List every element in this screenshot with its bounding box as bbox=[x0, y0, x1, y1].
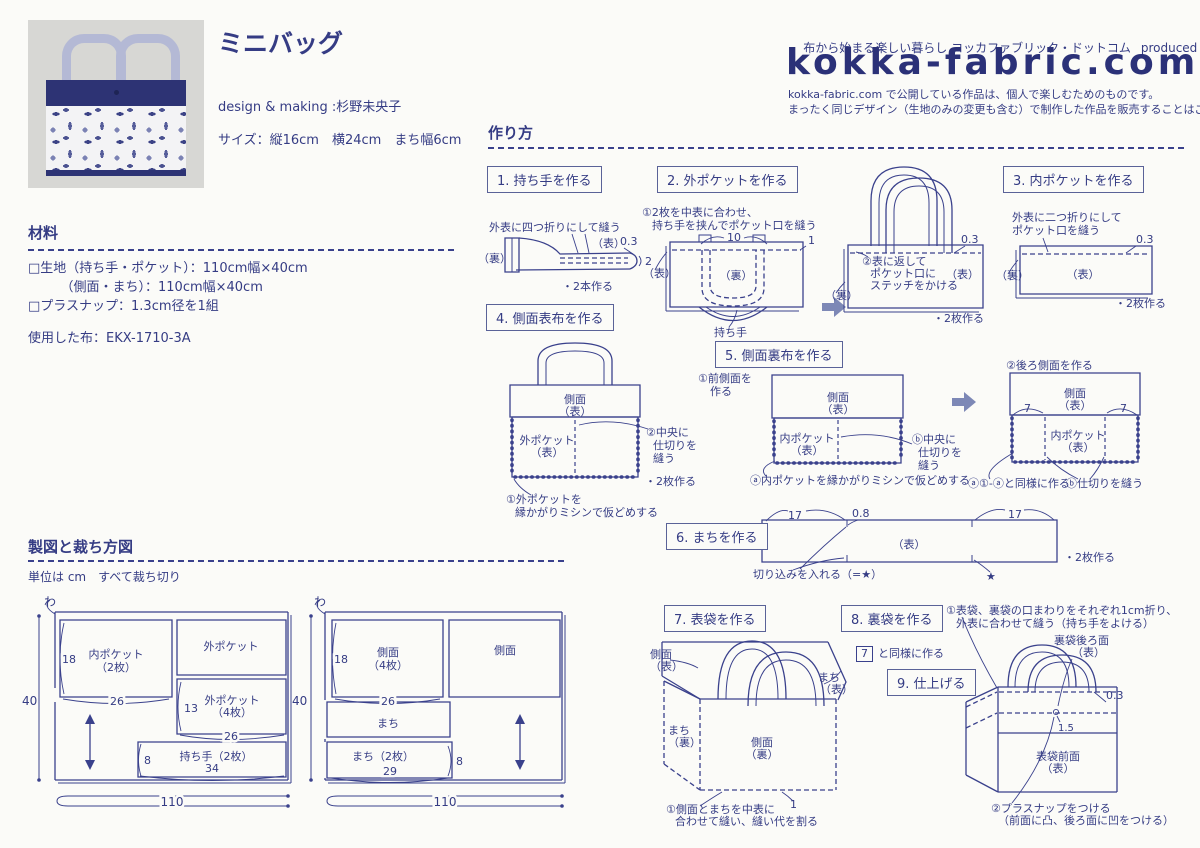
leader-line bbox=[1094, 692, 1106, 702]
dimension-dot bbox=[309, 614, 313, 618]
cutR-width: 110 bbox=[434, 795, 457, 809]
dimension-arc bbox=[178, 682, 181, 731]
s4-make-count: ・2枚作る bbox=[645, 474, 696, 488]
s5-noteA2: ⓐ①-ⓐと同様に作る bbox=[968, 476, 1070, 490]
material-item: □生地（持ち手・ポケット）：110cm幅×40cm bbox=[28, 260, 458, 279]
cutL-p4-label: 持ち手（2枚） bbox=[180, 749, 253, 763]
handle-loop bbox=[706, 307, 760, 317]
bag-photo bbox=[28, 20, 204, 188]
s4-note1b: 縁かがりミシンで仮どめする bbox=[515, 505, 658, 519]
cutting-note: 単位は cm すべて裁ち切り bbox=[28, 568, 181, 585]
s5-noteBb: 仕切りを bbox=[918, 446, 962, 459]
step-title-7: 7. 表袋を作る bbox=[664, 605, 766, 632]
cutR-p1-count: （4枚） bbox=[368, 658, 408, 672]
dimension-dot bbox=[560, 804, 564, 808]
bag-side-outline bbox=[966, 687, 998, 792]
s5-note1b: 作る bbox=[710, 385, 732, 398]
step-ref-box: 7 bbox=[856, 646, 873, 662]
step9-diagram: ①表袋、裏袋の口まわりをそれぞれ1cm折り、 外表に合わせて縫う（持ち手をよける… bbox=[946, 603, 1177, 827]
s6-dim-17b: 17 bbox=[1008, 508, 1022, 521]
s3-make-count: ・2枚作る bbox=[1115, 296, 1166, 310]
s4-note2c: 縫う bbox=[653, 451, 675, 465]
s6-star: ★ bbox=[986, 570, 996, 583]
step-title-3: 3. 内ポケットを作る bbox=[1003, 166, 1144, 193]
s5-noteBa: ⓑ中央に bbox=[912, 433, 956, 446]
cutting-heading: 製図と裁ち方図 bbox=[28, 536, 133, 557]
cutR-p4-label: まち（2枚） bbox=[352, 749, 414, 763]
s5-noteB2: ⓑ仕切りを縫う bbox=[1066, 476, 1143, 490]
cutR-p1-width: 26 bbox=[381, 695, 395, 708]
leader-line bbox=[1047, 457, 1078, 479]
s5-pocketR-face: （表） bbox=[1062, 440, 1095, 454]
s5-side-face: （表） bbox=[822, 402, 855, 416]
s7-sideU-face: （裏） bbox=[746, 747, 779, 761]
dimension-dot bbox=[286, 794, 290, 798]
s2-dim-10: 10 bbox=[727, 231, 741, 244]
s5-dim-7a: 7 bbox=[1024, 402, 1031, 415]
cutR-p4-height: 8 bbox=[456, 755, 463, 768]
leader-line bbox=[954, 246, 965, 253]
strap-bottom-edge bbox=[516, 269, 630, 270]
s6-dim-08: 0.8 bbox=[852, 507, 870, 520]
s2-omote: （表） bbox=[643, 266, 676, 280]
cutting-right-diagram: わ 40 110 側面 （4枚） 18 26 側面 まち まち（2枚） 29 8 bbox=[292, 595, 565, 809]
s6-cut-note: 切り込みを入れる（=★） bbox=[753, 568, 882, 581]
s3-note1a: 外表に二つ折りにして bbox=[1012, 210, 1122, 224]
s5-note2: ②後ろ側面を作る bbox=[1006, 358, 1093, 372]
handle-outline bbox=[538, 343, 612, 385]
grain-arrowhead bbox=[85, 760, 95, 770]
s5-pocket-label: 内ポケット bbox=[780, 431, 835, 445]
cutR-fold: わ bbox=[314, 595, 326, 609]
leader-line bbox=[800, 527, 846, 569]
s6-make-count: ・2枚作る bbox=[1064, 550, 1115, 564]
s3-ura: （裏） bbox=[996, 268, 1029, 282]
cutR-p1-label: 側面 bbox=[377, 646, 399, 659]
leader-line bbox=[989, 453, 1013, 479]
s5-pocketR-label: 内ポケット bbox=[1051, 428, 1106, 442]
cutL-height: 40 bbox=[22, 694, 37, 708]
s7-note1b: 合わせて縫い、縫い代を割る bbox=[675, 814, 818, 828]
s4-pocket-face: （表） bbox=[531, 445, 564, 459]
fabric-used: 使用した布：EKX-1710-3A bbox=[28, 330, 458, 349]
materials-heading: 材料 bbox=[28, 222, 458, 243]
s4-side-face: （表） bbox=[559, 404, 592, 418]
cutR-p2-label: 側面 bbox=[494, 644, 516, 657]
dashed-rule bbox=[28, 560, 566, 562]
step8-note-text: と同様に作る bbox=[878, 647, 944, 660]
s5-pocket-face: （表） bbox=[791, 443, 824, 457]
cutL-p1-width: 26 bbox=[110, 695, 124, 708]
arrow-right-icon bbox=[952, 392, 976, 412]
step7-diagram: 側面 （表） まち （表） まち （裏） 側面 （裏） 1 ①側面とまちを中表に… bbox=[650, 641, 853, 828]
leader-line bbox=[729, 310, 737, 327]
s2-ura: （裏） bbox=[720, 268, 753, 282]
s4-note2b: 仕切りを bbox=[653, 439, 697, 452]
step-title-8: 8. 裏袋を作る bbox=[841, 605, 943, 632]
cutL-p3-count: （4枚） bbox=[212, 705, 252, 719]
cutR-p3-label: まち bbox=[377, 717, 399, 730]
s2-dim-1: 1 bbox=[808, 234, 815, 247]
s1-dim-03: 0.3 bbox=[620, 235, 638, 248]
s2-note1a: ①2枚を中表に合わせ、 bbox=[642, 205, 758, 219]
piece-outline bbox=[449, 620, 560, 697]
page-title: ミニバッグ bbox=[218, 24, 343, 60]
bag-photo-snap bbox=[114, 90, 119, 95]
leader-line bbox=[1090, 457, 1104, 479]
stitch-line bbox=[966, 692, 997, 728]
s9-note1a: ①表袋、裏袋の口まわりをそれぞれ1cm折り、 bbox=[946, 603, 1177, 617]
s5-dim-7b: 7 bbox=[1120, 402, 1127, 415]
howto-heading: 作り方 bbox=[488, 122, 533, 143]
handle-outline bbox=[886, 178, 952, 253]
dimension-bracket bbox=[639, 256, 641, 266]
cutR-p4-width: 29 bbox=[383, 765, 397, 778]
s7-note1a: ①側面とまちを中表に bbox=[666, 802, 775, 816]
s7-machiO-face: （表） bbox=[820, 682, 853, 696]
s6-dim-17a: 17 bbox=[788, 509, 802, 522]
materials-section: 材料 □生地（持ち手・ポケット）：110cm幅×40cm （側面・まち）：110… bbox=[28, 222, 458, 348]
cutL-fold: わ bbox=[44, 595, 56, 609]
leader-line bbox=[1126, 246, 1136, 253]
dimension-arc bbox=[744, 237, 767, 244]
strap-tip bbox=[630, 253, 637, 269]
step4-diagram: 側面 （表） 外ポケット （表） ②中央に 仕切りを 縫う ・2枚作る ①外ポケ… bbox=[506, 343, 697, 519]
grain-arrowhead bbox=[515, 714, 525, 724]
s9-dim-03: 0.3 bbox=[1106, 689, 1124, 702]
leader-line bbox=[848, 520, 858, 525]
s1-make-count: ・2本作る bbox=[562, 279, 613, 293]
dimension-arc bbox=[701, 237, 724, 244]
s4-note2a: ②中央に bbox=[646, 426, 689, 439]
s1-caption: 外表に四つ折りにして縫う bbox=[489, 220, 621, 234]
step5-diagram: ①前側面を 作る 側面 （表） 内ポケット （表） ⓑ中央に 仕切りを 縫う ⓐ… bbox=[698, 358, 1143, 490]
s7-sideO-face: （表） bbox=[650, 659, 683, 673]
step1-diagram: 外表に四つ折りにして縫う （裏） （表） 0.3 2 ・2本作る bbox=[478, 220, 652, 293]
s2-omote2: （表） bbox=[946, 267, 979, 281]
s2-note1b: 持ち手を挟んでポケット口を縫う bbox=[652, 218, 816, 232]
s2-note2c: ステッチをかける bbox=[870, 279, 958, 292]
cutL-p2-label: 外ポケット bbox=[204, 640, 259, 653]
material-item: □プラスナップ：1.3cm径を1組 bbox=[28, 298, 458, 317]
leader-line bbox=[572, 234, 578, 253]
leader-line bbox=[1057, 716, 1060, 722]
dimension-arc bbox=[806, 510, 845, 520]
s7-machiU-face: （裏） bbox=[668, 735, 701, 749]
s5-sideR-face: （表） bbox=[1059, 398, 1092, 412]
s2-make-count: ・2枚作る bbox=[933, 311, 984, 325]
s1-ura: （裏） bbox=[478, 251, 511, 265]
s3-omote: （表） bbox=[1067, 267, 1100, 281]
step-title-4: 4. 側面表布を作る bbox=[486, 304, 614, 331]
cutL-p3-width: 26 bbox=[224, 730, 238, 743]
step6-diagram: 17 0.8 17 （表） 切り込みを入れる（=★） ★ ・2枚作る bbox=[753, 507, 1115, 583]
step-title-2: 2. 外ポケットを作る bbox=[657, 166, 798, 193]
s2-dim-03: 0.3 bbox=[961, 233, 979, 246]
step3-diagram: 外表に二つ折りにして ポケット口を縫う 0.3 （裏） （表） ・2枚作る bbox=[996, 210, 1166, 310]
s9-dim-15: 1.5 bbox=[1058, 723, 1074, 734]
cutL-p1-count: （2枚） bbox=[96, 660, 136, 674]
s4-note1a: ①外ポケットを bbox=[506, 493, 582, 506]
dashed-rule bbox=[28, 249, 458, 251]
gusset-edge bbox=[664, 681, 700, 699]
dimension-dot bbox=[309, 778, 313, 782]
snap-circle bbox=[1053, 709, 1058, 714]
dimension-arc bbox=[448, 746, 451, 776]
s2-handle-label: 持ち手 bbox=[714, 325, 747, 339]
dimension-arc bbox=[975, 509, 1005, 520]
s5-noteBc: 縫う bbox=[918, 458, 940, 472]
cutR-height: 40 bbox=[292, 694, 307, 708]
grain-arrowhead bbox=[515, 760, 525, 770]
step-title-6: 6. まちを作る bbox=[666, 523, 768, 550]
dimension-arc bbox=[1024, 510, 1054, 520]
dimension-dot bbox=[286, 804, 290, 808]
pattern-sheet: 外表に四つ折りにして縫う （裏） （表） 0.3 2 ・2本作る ①2枚を中表に… bbox=[0, 0, 1200, 848]
s5-note1a: ①前側面を bbox=[698, 371, 752, 385]
step-title-1: 1. 持ち手を作る bbox=[487, 166, 602, 193]
usage-notice-line2: まったく同じデザイン（生地のみの変更も含む）で制作した作品を販売することはご遠慮… bbox=[788, 101, 1200, 117]
s5-noteA: ⓐ内ポケットを縁かがりミシンで仮どめする bbox=[750, 473, 970, 487]
cutL-p4-height: 8 bbox=[144, 754, 151, 767]
cutL-p1-label: 内ポケット bbox=[89, 647, 144, 661]
s3-note1b: ポケット口を縫う bbox=[1012, 223, 1100, 237]
dimension-dot bbox=[37, 614, 41, 618]
usage-notice-line1: kokka-fabric.com で公開している作品は、個人で楽しむためのもので… bbox=[788, 86, 1159, 102]
dashed-rule bbox=[488, 147, 1186, 149]
s9-note2b: （前面に凸、後ろ面に凹をつける） bbox=[998, 813, 1174, 827]
s2-ura2: （裏） bbox=[825, 288, 858, 302]
cutL-p3-height: 13 bbox=[184, 702, 198, 715]
s7-dim-1: 1 bbox=[790, 798, 797, 811]
cutting-left-diagram: わ 40 110 内ポケット （2枚） 18 26 外ポケット 外ポケット （4… bbox=[22, 595, 291, 809]
finished-size: サイズ：縦16cm 横24cm まち幅6cm bbox=[218, 129, 461, 148]
handle-outline bbox=[726, 649, 778, 699]
s9-note1b: 外表に合わせて縫う（持ち手をよける） bbox=[956, 616, 1154, 630]
s9-front-label: 表袋前面 bbox=[1036, 749, 1080, 763]
bag-photo-body bbox=[46, 106, 186, 170]
s9-front-face: （表） bbox=[1042, 761, 1075, 775]
designer-credit: design & making :杉野未央子 bbox=[218, 96, 401, 115]
bag-photo-bottom bbox=[46, 170, 186, 176]
material-item: （側面・まち）：110cm幅×40cm bbox=[28, 279, 458, 298]
leader-line bbox=[585, 234, 589, 253]
site-logo: kokka-fabric.com bbox=[786, 42, 1199, 83]
cutL-p4-width: 34 bbox=[205, 762, 219, 775]
step8-note: 7と同様に作る bbox=[842, 632, 944, 675]
step-title-5: 5. 側面裏布を作る bbox=[715, 341, 843, 368]
handle-outline bbox=[718, 641, 786, 699]
cutR-p1-height: 18 bbox=[334, 653, 348, 666]
cutL-p1-height: 18 bbox=[62, 653, 76, 666]
dimension-arc bbox=[139, 744, 142, 776]
s9-back-face: （表） bbox=[1072, 645, 1105, 659]
s9-back-label: 裏袋後ろ面 bbox=[1054, 633, 1109, 647]
grain-arrowhead bbox=[85, 714, 95, 724]
s6-omote: （表） bbox=[893, 537, 926, 551]
cutL-width: 110 bbox=[161, 795, 184, 809]
handle-outline bbox=[546, 351, 604, 385]
s2-note2a: ②表に返して bbox=[862, 254, 927, 268]
bag-body-outline bbox=[998, 687, 1117, 792]
dimension-dot bbox=[37, 778, 41, 782]
leader-line bbox=[1043, 238, 1048, 252]
dimension-dot bbox=[560, 794, 564, 798]
s3-dim-03: 0.3 bbox=[1136, 233, 1154, 246]
